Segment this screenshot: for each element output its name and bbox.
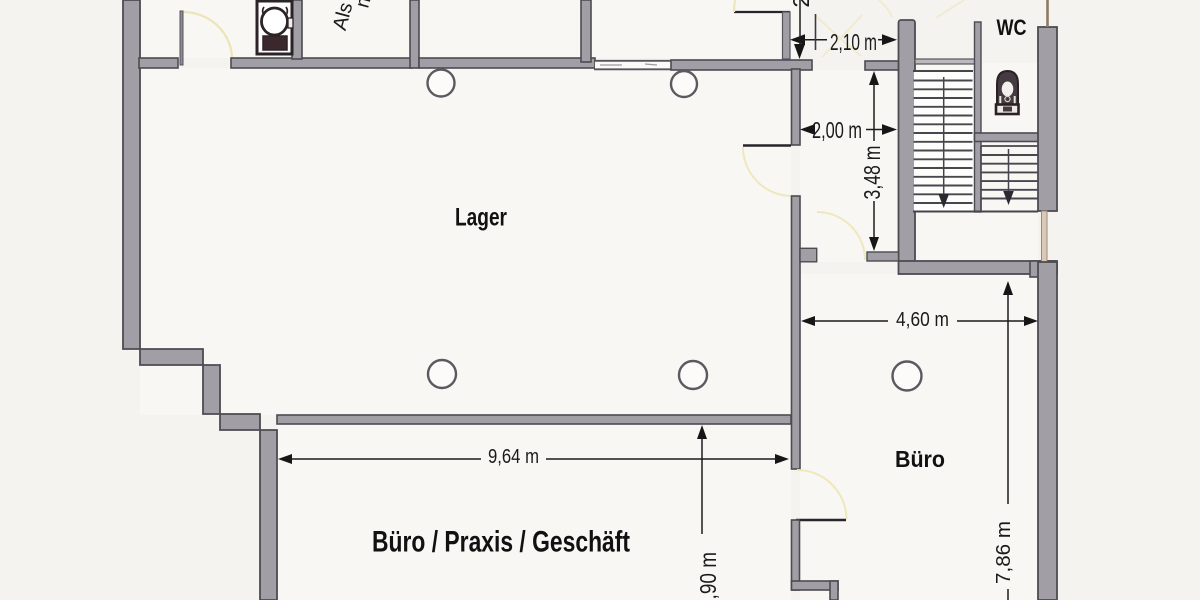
- svg-text:2,: 2,: [788, 0, 814, 8]
- svg-text:7,86 m: 7,86 m: [993, 521, 1015, 584]
- svg-text:Lager: Lager: [455, 204, 507, 232]
- svg-text:Büro: Büro: [895, 446, 945, 472]
- svg-text:4,90 m: 4,90 m: [695, 552, 721, 600]
- svg-text:Büro / Praxis / Geschäft: Büro / Praxis / Geschäft: [372, 526, 630, 559]
- svg-text:2,00 m: 2,00 m: [812, 117, 862, 143]
- svg-text:9,64 m: 9,64 m: [488, 446, 539, 468]
- svg-text:3,48 m: 3,48 m: [859, 146, 885, 200]
- svg-text:WC: WC: [997, 15, 1027, 40]
- svg-text:4,60 m: 4,60 m: [896, 309, 949, 331]
- svg-text:2,10 m: 2,10 m: [830, 29, 877, 55]
